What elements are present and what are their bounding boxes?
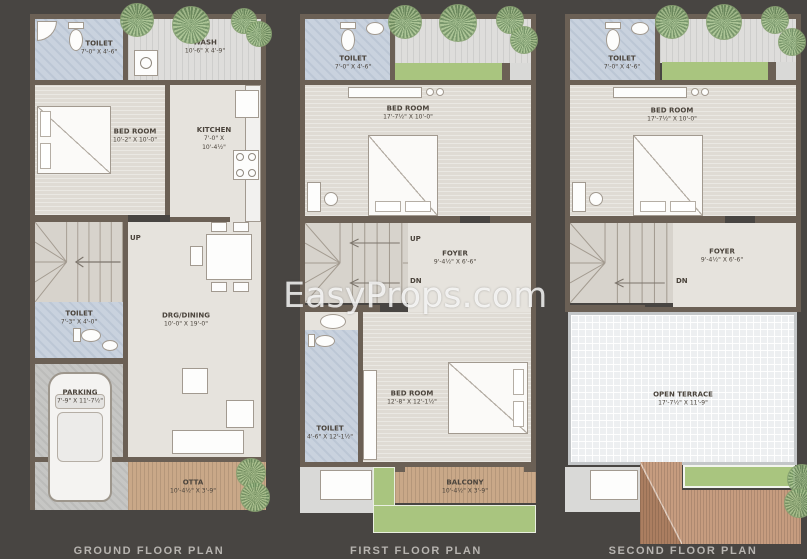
room-label: BED ROOM 12'-8" X 12'-1½" [387, 389, 437, 408]
tree-icon [439, 4, 477, 42]
wc-icon [81, 329, 101, 342]
chair-icon [324, 192, 338, 206]
room-label: BED ROOM 10'-2" X 10'-0" [113, 127, 157, 146]
room-label: TOILET 7'-0" X 4'-6" [604, 54, 640, 73]
dresser-icon [348, 87, 422, 98]
room-label: DRG/DINING 10'-0" X 19'-0" [162, 311, 210, 330]
bed-icon [633, 135, 703, 216]
desk-icon [307, 182, 321, 212]
tree-icon [246, 21, 272, 47]
room-label: FOYER 9'-4½" X 6'-6" [434, 249, 476, 268]
wardrobe-icon [363, 370, 377, 460]
stove-icon [233, 150, 259, 180]
dining-chair-icon [233, 282, 249, 292]
window-icon [320, 470, 372, 500]
room-label: KITCHEN 7'-0" X 10'-4½" [192, 125, 236, 153]
tree-icon [172, 6, 210, 44]
basin-icon [631, 22, 649, 35]
floor-plan-sheet: TOILET 7'-0" X 4'-6" WASH 10'-6" X 4'-9"… [0, 0, 807, 559]
room-label: BED ROOM 17'-7½" X 10'-0" [647, 106, 697, 125]
stool-icon [436, 88, 444, 96]
room-label: TOILET 7'-3" X 4'-0" [61, 309, 97, 328]
room-label: OPEN TERRACE 17'-7½" X 11'-9" [653, 390, 713, 409]
wc-tank-icon [605, 22, 621, 29]
desk-icon [572, 182, 586, 212]
tree-icon [240, 482, 270, 512]
green-area [683, 465, 795, 488]
tree-icon [510, 26, 538, 54]
dining-table-icon [206, 234, 252, 280]
bed-icon [37, 106, 111, 174]
stool-icon [701, 88, 709, 96]
roof [682, 490, 801, 544]
bed-icon [368, 135, 438, 216]
window-icon [590, 470, 638, 500]
stairs-up-label: UP [410, 235, 421, 243]
second-floor-title: SECOND FLOOR PLAN [609, 545, 758, 557]
dresser-icon [613, 87, 687, 98]
wc-tank-icon [308, 334, 315, 347]
chair-icon [589, 192, 603, 206]
room-open-terrace [568, 312, 797, 465]
tree-icon [655, 5, 689, 39]
wc-icon [606, 29, 620, 51]
stool-icon [426, 88, 434, 96]
wc-tank-icon [340, 22, 356, 29]
tree-icon [784, 488, 807, 518]
bed-icon [448, 362, 528, 434]
dining-chair-icon [190, 246, 203, 266]
wc-tank-icon [73, 328, 81, 342]
wc-tank-icon [68, 22, 84, 29]
basin-icon [102, 340, 118, 351]
tree-icon [706, 4, 742, 40]
room-label: TOILET 7'-0" X 4'-6" [81, 39, 117, 58]
room-label: BALCONY 10'-4½" X 3'-9" [442, 478, 488, 497]
dining-chair-icon [233, 222, 249, 232]
stairs-up-label: UP [130, 234, 141, 242]
stairs-dn-label: DN [676, 277, 688, 285]
room-label: TOILET 4'-6" X 12'-1½" [305, 424, 355, 443]
wc-icon [341, 29, 355, 51]
tree-icon [388, 5, 422, 39]
sofa-icon [226, 400, 254, 428]
sofa-icon [172, 430, 244, 454]
first-floor-title: FIRST FLOOR PLAN [350, 545, 482, 557]
ground-floor-plan: TOILET 7'-0" X 4'-6" WASH 10'-6" X 4'-9"… [30, 14, 266, 510]
wc-icon [315, 335, 335, 347]
watermark: EasyProps.com [283, 276, 547, 316]
basin-icon [366, 22, 384, 35]
room-label: FOYER 9'-4½" X 6'-6" [701, 247, 743, 266]
wash-sink-bowl-icon [140, 57, 152, 69]
dining-chair-icon [211, 222, 227, 232]
stool-icon [691, 88, 699, 96]
room-label: TOILET 7'-0" X 4'-6" [335, 54, 371, 73]
second-floor-plan: TOILET 7'-0" X 4'-6" BED ROOM 17'-7½" X … [565, 14, 801, 535]
room-label: OTTA 10'-4½" X 3'-9" [170, 478, 216, 497]
tree-icon [120, 3, 154, 37]
fridge-icon [235, 90, 259, 118]
first-floor-plan: TOILET 7'-0" X 4'-6" BED ROOM 17'-7½" X … [300, 14, 536, 535]
tree-icon [778, 28, 806, 56]
dining-chair-icon [211, 282, 227, 292]
tv-unit-icon [182, 368, 208, 394]
ground-floor-title: GROUND FLOOR PLAN [74, 545, 225, 557]
green-area [373, 505, 536, 533]
room-label: BED ROOM 17'-7½" X 10'-0" [383, 104, 433, 123]
room-label: PARKING 7'-9" X 11'-7½" [57, 388, 103, 407]
vanity-basin-icon [320, 314, 346, 329]
roof [640, 462, 682, 544]
